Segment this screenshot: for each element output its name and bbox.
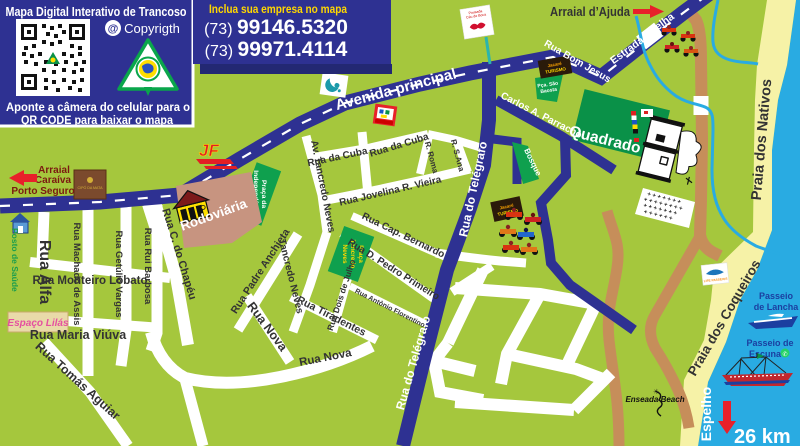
svg-text:QR CODE para baixar o mapa: QR CODE para baixar o mapa xyxy=(21,113,173,127)
svg-text:Posto de Saúde: Posto de Saúde xyxy=(10,228,20,292)
svg-text:Arraial d’Ajuda: Arraial d’Ajuda xyxy=(550,4,631,19)
svg-text:Passeio: Passeio xyxy=(759,291,794,301)
svg-text:Inclua sua empresa no mapa: Inclua sua empresa no mapa xyxy=(209,4,348,16)
svg-text:Rua Maria Viúva: Rua Maria Viúva xyxy=(30,328,127,342)
svg-text:Passeio de: Passeio de xyxy=(746,338,793,348)
svg-text:Mapa Digital Interativo de Tra: Mapa Digital Interativo de Trancoso xyxy=(6,4,187,19)
svg-text:Rua Alfa: Rua Alfa xyxy=(36,240,53,304)
svg-text:CIPÓ DA MATA: CIPÓ DA MATA xyxy=(77,185,103,190)
svg-text:de Lancha: de Lancha xyxy=(754,302,800,312)
svg-text:Enseada Beach: Enseada Beach xyxy=(625,395,684,404)
svg-text:Caraíva: Caraíva xyxy=(35,175,72,186)
svg-text:Rua Machado de Assis: Rua Machado de Assis xyxy=(71,222,82,325)
svg-text:✆: ✆ xyxy=(782,351,787,358)
svg-text:26 km: 26 km xyxy=(734,426,791,446)
svg-text:Porto Seguro: Porto Seguro xyxy=(11,186,74,197)
svg-text:Copyrigth: Copyrigth xyxy=(124,21,180,36)
svg-text:Aponte a câmera do celular par: Aponte a câmera do celular para o xyxy=(6,100,190,114)
svg-text:Rua Getúlio Vargas: Rua Getúlio Vargas xyxy=(113,230,124,317)
svg-text:JF: JF xyxy=(199,141,219,160)
svg-text:☀: ☀ xyxy=(653,388,659,396)
svg-text:@: @ xyxy=(108,23,119,35)
svg-text:Rua Monteiro Lobato: Rua Monteiro Lobato xyxy=(33,275,148,287)
svg-text:Espelho: Espelho xyxy=(698,387,714,441)
svg-text:Rua Rui Barbosa: Rua Rui Barbosa xyxy=(142,228,153,305)
